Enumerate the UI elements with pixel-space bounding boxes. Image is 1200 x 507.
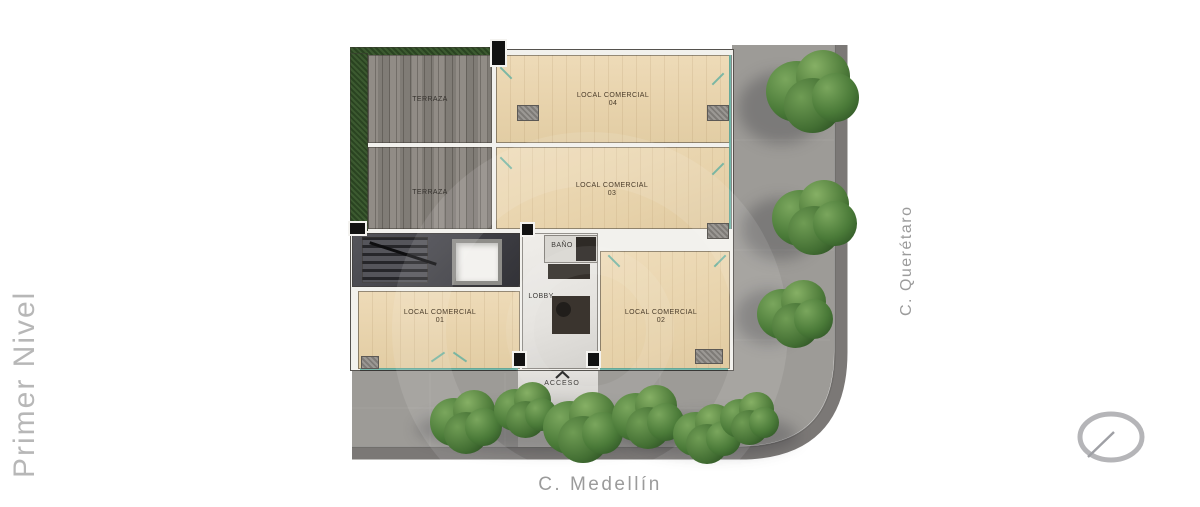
planter xyxy=(518,106,538,120)
label-local-03: LOCAL COMERCIAL 03 xyxy=(576,182,648,198)
street-label-queretaro: C. Querétaro xyxy=(898,194,916,316)
tree xyxy=(720,392,783,448)
planter xyxy=(696,350,722,363)
local-03-name: LOCAL COMERCIAL xyxy=(576,182,648,190)
planter xyxy=(708,106,728,120)
tree xyxy=(772,180,862,260)
column-marker xyxy=(514,353,525,366)
label-lobby: LOBBY xyxy=(528,293,553,301)
planter xyxy=(362,357,378,368)
column-marker xyxy=(492,41,505,65)
hedge-left xyxy=(350,53,368,231)
tree xyxy=(757,280,838,352)
glass-storefront xyxy=(360,368,518,370)
lobby-stool xyxy=(556,302,571,317)
tree-foliage xyxy=(813,201,856,246)
local-04-number: 04 xyxy=(577,100,649,108)
local-01-number: 01 xyxy=(404,317,476,325)
glass-storefront xyxy=(729,55,731,229)
glass-storefront xyxy=(600,368,728,370)
page-title-primer-nivel: Primer Nivel xyxy=(8,282,42,478)
chevron-up-icon xyxy=(554,370,571,379)
street-label-medellin: C. Medellín xyxy=(470,474,730,496)
label-terraza-top: TERRAZA xyxy=(412,96,447,104)
planter xyxy=(708,224,728,238)
local-01-name: LOCAL COMERCIAL xyxy=(404,309,476,317)
tree xyxy=(766,50,865,138)
local-02-number: 02 xyxy=(625,317,697,325)
local-04-name: LOCAL COMERCIAL xyxy=(577,92,649,100)
floorplan-canvas: TERRAZA TERRAZA LOCAL COMERCIAL 04 LOCAL… xyxy=(0,0,1200,507)
tree-foliage xyxy=(749,407,779,438)
local-02-name: LOCAL COMERCIAL xyxy=(625,309,697,317)
bano-fixture xyxy=(576,237,596,261)
label-terraza-bottom: TERRAZA xyxy=(412,189,447,197)
elevator xyxy=(452,239,502,285)
compass-icon xyxy=(1073,409,1149,467)
label-local-04: LOCAL COMERCIAL 04 xyxy=(577,92,649,108)
room-terraza-bottom xyxy=(368,147,492,229)
label-local-01: LOCAL COMERCIAL 01 xyxy=(404,309,476,325)
column-marker xyxy=(350,223,365,234)
tree-foliage xyxy=(812,73,860,122)
tree-foliage xyxy=(794,299,833,339)
lobby-shelf xyxy=(548,264,590,279)
column-marker xyxy=(588,353,599,366)
column-marker xyxy=(522,224,533,235)
label-acceso: ACCESO xyxy=(544,380,580,388)
local-03-number: 03 xyxy=(576,190,648,198)
label-local-02: LOCAL COMERCIAL 02 xyxy=(625,309,697,325)
label-bano: BAÑO xyxy=(551,242,572,250)
